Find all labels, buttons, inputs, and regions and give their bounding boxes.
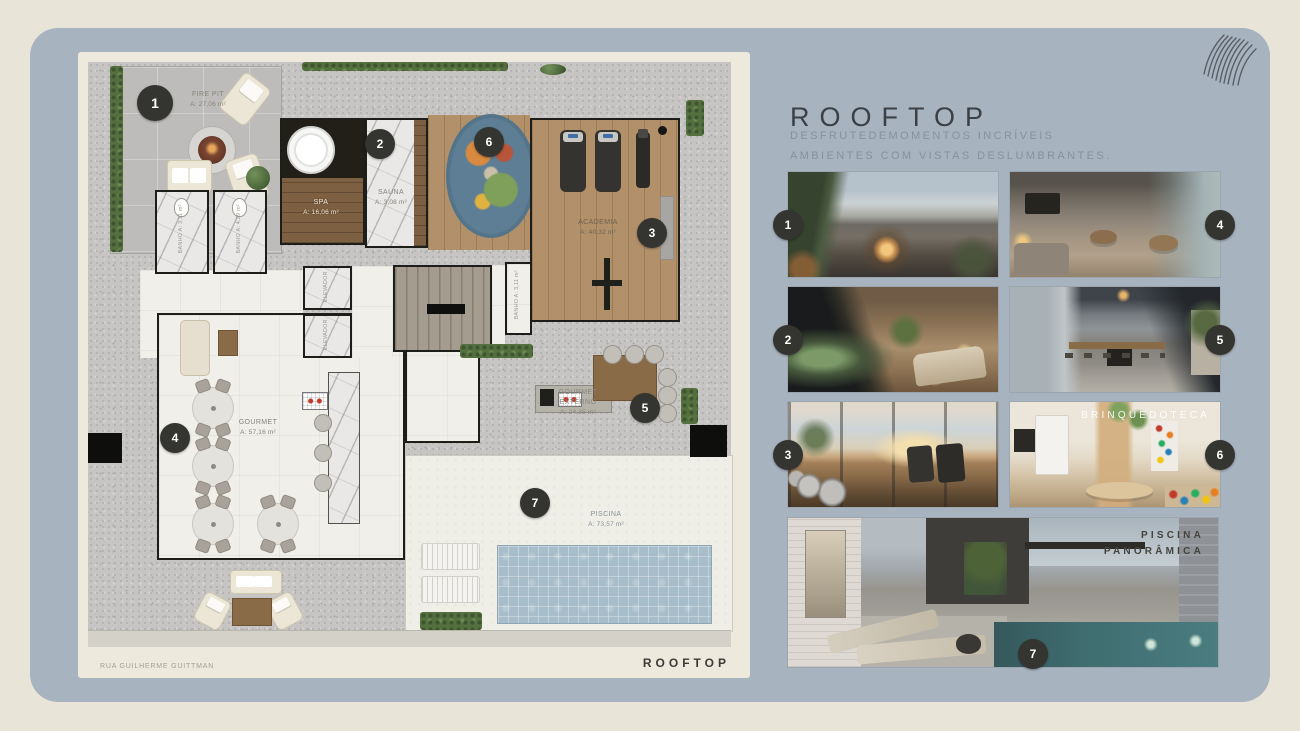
room-label-banho-2: BANHO A: 4,29 m² — [236, 199, 244, 259]
plan-footer-title: ROOFTOP — [643, 656, 730, 670]
photo-marker-6: 6 — [1205, 440, 1235, 470]
stool — [645, 345, 664, 364]
pool-lounger — [421, 576, 480, 603]
subtitle-line-1: DESFRUTEDEMOMENTOS INCRÍVEIS — [790, 127, 1112, 147]
plan-marker-4: 4 — [160, 423, 190, 453]
photo-gourmet-lounge-image — [1010, 172, 1220, 277]
photo-gourmet-externo: 5 — [1010, 287, 1220, 392]
photo-academia: 3 — [788, 402, 998, 507]
subtitle-line-2: AMBIENTES COM VISTAS DESLUMBRANTES. — [790, 147, 1112, 167]
outdoor-loveseat — [230, 570, 282, 594]
photo-marker-7: 7 — [1018, 639, 1048, 669]
stool — [314, 474, 332, 492]
photo-overlay-piscina: PISCINA PANORÂMICA — [1104, 528, 1204, 560]
dining-table — [192, 445, 234, 487]
page-subtitle: DESFRUTEDEMOMENTOS INCRÍVEIS AMBIENTES C… — [790, 127, 1112, 167]
utility-box — [690, 425, 727, 457]
hedge — [686, 100, 704, 136]
room-label-banho-1: BANHO A: 3,11 m² — [178, 199, 186, 259]
elevator-2-label: ELEVADOR — [323, 305, 331, 365]
plan-marker-3: 3 — [637, 218, 667, 248]
photo-marker-4: 4 — [1205, 210, 1235, 240]
sidewalk — [88, 630, 731, 647]
bush — [246, 166, 270, 190]
photo-academia-image — [788, 402, 998, 507]
overlay-piscina-line1: PISCINA — [1104, 528, 1204, 544]
photo-marker-1: 1 — [773, 210, 803, 240]
pool-lounger — [421, 543, 480, 570]
room-label-academia: ACADEMIAA: 40,32 m² — [564, 218, 632, 237]
treadmill — [560, 130, 586, 192]
photo-spa-image — [788, 287, 998, 392]
stool — [625, 345, 644, 364]
hedge — [420, 612, 482, 630]
kitchen-island — [328, 372, 360, 524]
hedge — [302, 62, 508, 71]
bush — [540, 64, 566, 75]
outdoor-chair — [192, 590, 233, 632]
dining-table — [192, 503, 234, 545]
cooktop — [302, 392, 328, 410]
stair-landing — [492, 265, 505, 352]
stool — [658, 386, 677, 405]
pool — [497, 545, 712, 624]
rowing-machine — [636, 132, 650, 188]
cable-machine-bar — [592, 280, 622, 286]
plan-marker-2: 2 — [365, 129, 395, 159]
stool — [658, 404, 677, 423]
staircase — [393, 265, 492, 352]
overlay-piscina-line2: PANORÂMICA — [1104, 544, 1204, 560]
stool — [603, 345, 622, 364]
photo-fire-pit-terrace: 1 — [788, 172, 998, 277]
photo-marker-5: 5 — [1205, 325, 1235, 355]
stool — [314, 444, 332, 462]
plan-marker-5: 5 — [630, 393, 660, 423]
jacuzzi — [287, 126, 335, 174]
wave-lines-logo-icon — [1202, 34, 1260, 86]
photo-overlay-brinquedoteca: BRINQUEDOTECA — [1081, 410, 1210, 421]
utility-box — [88, 433, 122, 463]
gourmet-sofa — [180, 320, 210, 376]
treadmill — [595, 130, 621, 192]
presentation-canvas: 1 FIRE PITA: 27,06 m² SPAA: 16,06 m² 2 S… — [30, 28, 1270, 702]
hedge — [110, 66, 123, 252]
room-label-sauna: SAUNAA: 3,08 m² — [365, 188, 417, 207]
floor-plan: 1 FIRE PITA: 27,06 m² SPAA: 16,06 m² 2 S… — [88, 62, 731, 646]
photo-gourmet-lounge: 4 — [1010, 172, 1220, 277]
street-label: RUA GUILHERME GUITTMAN — [100, 663, 214, 670]
stool — [314, 414, 332, 432]
room-label-banho-3: BANHO A: 3,11 m² — [514, 265, 522, 325]
room-label-spa: SPAA: 16,06 m² — [286, 198, 356, 217]
room-label-gourmet-externo: GOURMET EXTERNOA: 24,35 m² — [543, 388, 613, 417]
photo-fire-pit-terrace-image — [788, 172, 998, 277]
room-label-fire-pit: FIRE PITA: 27,06 m² — [172, 90, 244, 109]
outdoor-table — [232, 598, 272, 626]
stool — [658, 368, 677, 387]
photo-gourmet-externo-image — [1010, 287, 1220, 392]
sauna-bench — [414, 120, 426, 246]
room-label-piscina: PISCINAA: 73,57 m² — [573, 510, 639, 529]
room-label-gourmet: GOURMETA: 57,16 m² — [226, 418, 290, 437]
brochure-page: { "header": { "title": "ROOFTOP", "subti… — [0, 0, 1300, 731]
plan-marker-1: 1 — [137, 85, 173, 121]
outdoor-sofa — [167, 160, 212, 192]
photo-spa: 2 — [788, 287, 998, 392]
hedge — [681, 388, 698, 424]
dining-table — [257, 503, 299, 545]
coffee-table — [218, 330, 238, 356]
photo-marker-3: 3 — [773, 440, 803, 470]
photo-marker-2: 2 — [773, 325, 803, 355]
floor-plan-panel: 1 FIRE PITA: 27,06 m² SPAA: 16,06 m² 2 S… — [78, 52, 750, 678]
elevator-hall — [352, 266, 393, 358]
plan-marker-7: 7 — [520, 488, 550, 518]
column-dot — [658, 126, 667, 135]
plan-footer: RUA GUILHERME GUITTMAN ROOFTOP — [100, 656, 730, 670]
photo-brinquedoteca: BRINQUEDOTECA 6 — [1010, 402, 1220, 507]
photo-piscina-panoramica: PISCINA PANORÂMICA 7 — [788, 518, 1218, 667]
hedge — [460, 344, 533, 358]
plan-marker-6: 6 — [474, 127, 504, 157]
